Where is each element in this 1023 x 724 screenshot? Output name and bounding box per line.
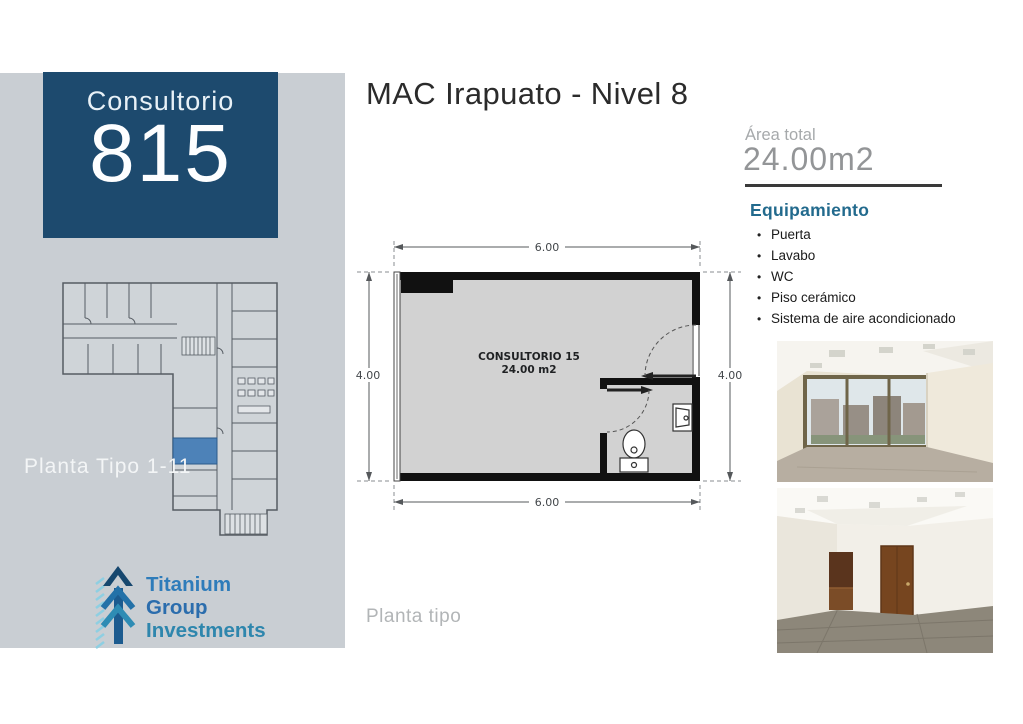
sidebar: Consultorio 815 <box>0 73 345 648</box>
logo-word-group: Group <box>146 596 266 619</box>
equipment-item-puerta: Puerta <box>756 228 956 242</box>
plan-type-caption: Planta Tipo 1-11 <box>24 455 191 479</box>
window-city-view <box>805 377 929 447</box>
wooden-door <box>881 546 913 616</box>
window-wall <box>394 272 400 481</box>
dim-right: 4.00 <box>718 369 743 382</box>
sink-icon <box>673 404 692 431</box>
logo-hatch-stripes <box>96 578 104 648</box>
equipment-item-aire: Sistema de aire acondicionado <box>756 312 956 326</box>
toilet-icon <box>620 430 648 472</box>
doorway-cabinet <box>829 552 853 610</box>
logo-word-titanium: Titanium <box>146 573 266 596</box>
building-plan-thumbnail <box>58 278 313 543</box>
room-label: CONSULTORIO 15 <box>478 351 580 363</box>
equipment-item-piso: Piso cerámico <box>756 291 956 305</box>
equipment-title: Equipamiento <box>750 200 869 221</box>
divider-rule <box>745 184 942 187</box>
office-window-photo <box>777 341 993 482</box>
unit-number-box: Consultorio 815 <box>43 72 278 238</box>
dim-bottom: 6.00 <box>535 496 560 509</box>
unit-number: 815 <box>89 111 232 197</box>
dim-top: 6.00 <box>535 241 560 254</box>
room-area-label: 24.00 m2 <box>501 364 556 376</box>
logo-word-investments: Investments <box>146 619 266 642</box>
equipment-item-lavabo: Lavabo <box>756 249 956 263</box>
equipment-item-wc: WC <box>756 270 956 284</box>
company-logo: Titanium Group Investments <box>95 562 266 650</box>
floorplan-caption: Planta tipo <box>366 606 461 628</box>
equipment-list: Puerta Lavabo WC Piso cerámico Sistema d… <box>756 228 956 333</box>
page-title: MAC Irapuato - Nivel 8 <box>366 76 688 112</box>
titanium-building-arrow-icon <box>95 562 141 650</box>
brochure-slide: Consultorio 815 <box>0 0 1023 724</box>
unit-floorplan: 6.00 6.00 4.00 4.00 <box>353 238 745 516</box>
office-doors-photo <box>777 488 993 653</box>
dim-left: 4.00 <box>356 369 381 382</box>
area-total-value: 24.00m2 <box>743 141 875 178</box>
